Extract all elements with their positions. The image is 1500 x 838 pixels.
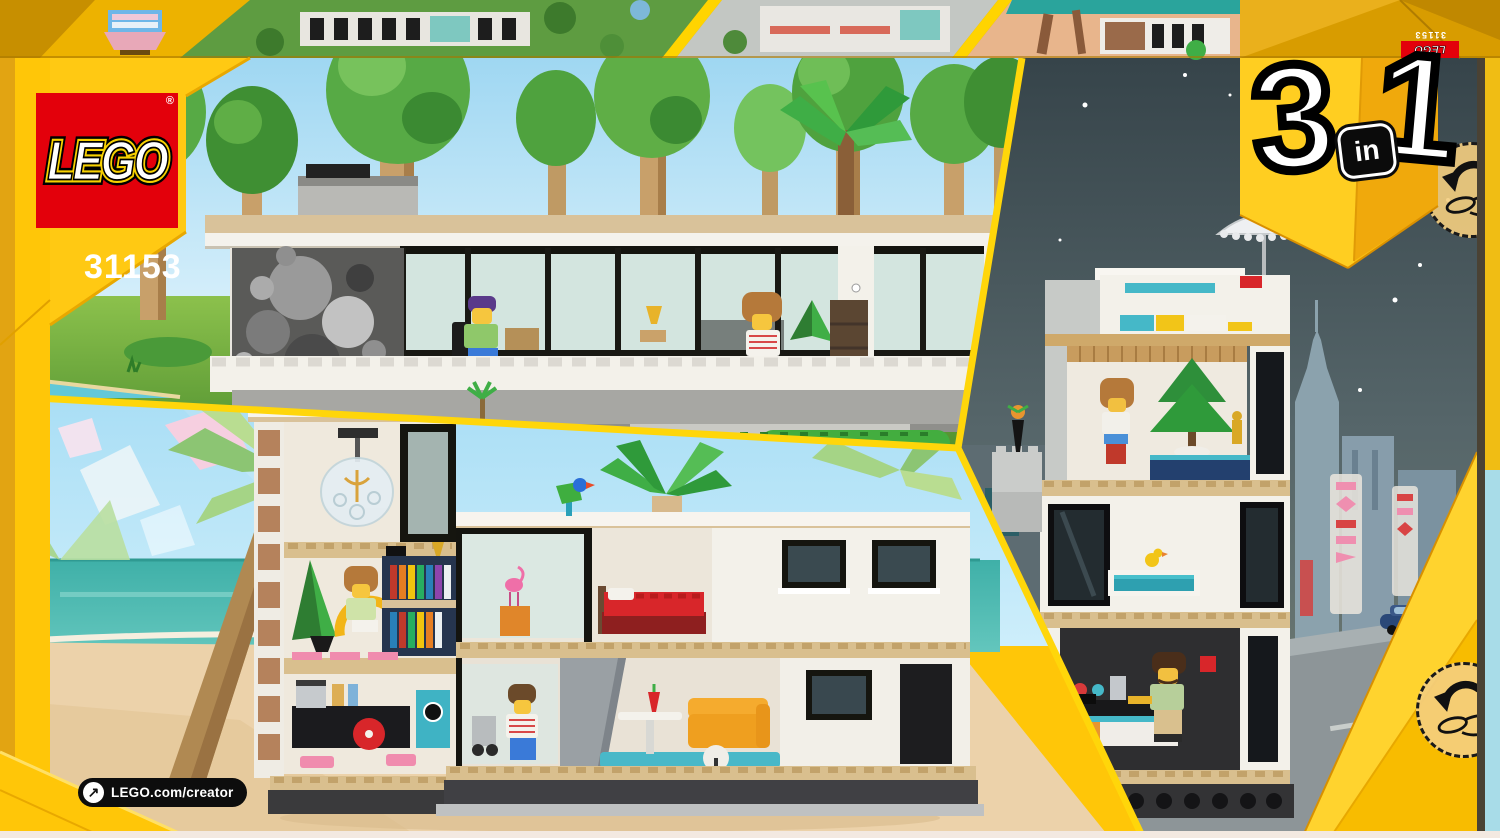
brand-wordmark: LEGO xyxy=(36,78,178,243)
lego-logo: LEGO LEGO LEGO ® xyxy=(36,93,178,228)
arrow-up-right-icon: ↗ xyxy=(83,782,104,803)
registered-trademark: ® xyxy=(166,95,174,107)
badge-3in1: 3 1 in xyxy=(1238,58,1443,273)
badge-digit-3: 3 xyxy=(1247,39,1341,194)
website-pill[interactable]: ↗ LEGO.com/creator xyxy=(78,778,247,807)
right-border xyxy=(1477,58,1500,838)
lego-box-back: LEGO LEGO LEGO ® 31153 3 1 in LEGO 31153… xyxy=(0,0,1500,838)
rotate-hand-icon xyxy=(1416,662,1477,758)
set-number: 31153 xyxy=(84,248,182,287)
badge-in-panel: in xyxy=(1339,125,1394,177)
website-label: LEGO.com/creator xyxy=(111,785,234,800)
